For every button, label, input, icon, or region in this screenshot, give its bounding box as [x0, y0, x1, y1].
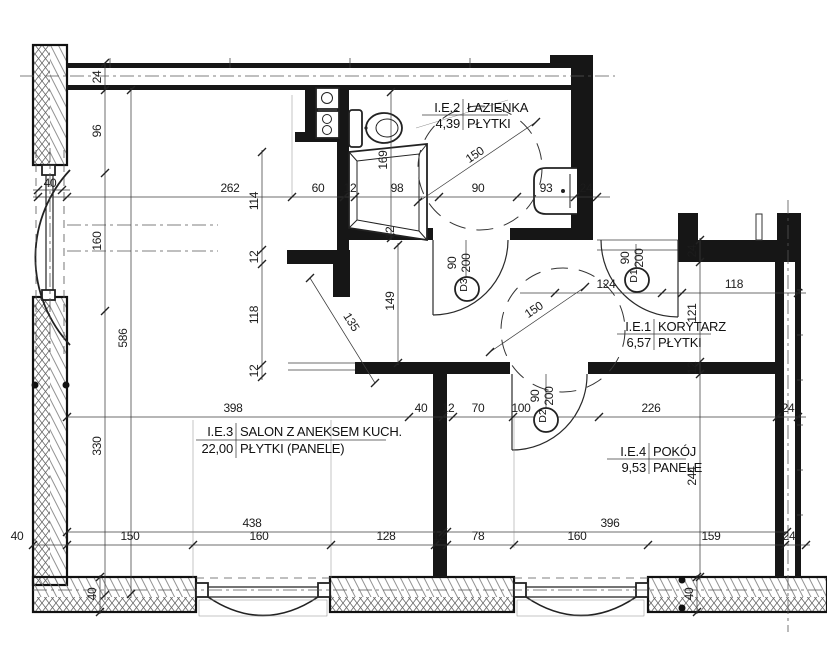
- dim-label: 396: [600, 516, 620, 530]
- room-id: I.E.4: [620, 444, 646, 459]
- dim-label: 12: [247, 250, 261, 263]
- door-tag-label: D1: [628, 269, 640, 283]
- room-area: 4,39: [435, 116, 460, 131]
- dim-label: 160: [249, 529, 269, 543]
- room-area: 9,53: [621, 460, 646, 475]
- exterior-wall-bottom: [33, 577, 827, 612]
- dim-label: 40: [44, 176, 57, 190]
- room-area: 22,00: [201, 441, 233, 456]
- room-name: POKÓJ: [653, 444, 696, 459]
- dim-label: 98: [391, 181, 404, 195]
- dim-label: 150: [522, 298, 546, 321]
- dim-label: 24: [580, 181, 593, 195]
- room-name: ŁAZIENKA: [467, 100, 529, 115]
- door-tag-label: D3: [458, 278, 470, 292]
- dim-label: 40: [85, 587, 99, 600]
- dim-label: 24: [782, 401, 795, 415]
- dim-label: 78: [472, 529, 485, 543]
- door-tag-d2: D2 90 200: [528, 386, 558, 432]
- dim-label: 93: [540, 181, 553, 195]
- dim-label: 96: [90, 124, 104, 137]
- floor-plan-page: 40 262 60 12 98 90 93 24 124 118 398 40 …: [0, 0, 827, 668]
- dim-label: 118: [725, 277, 744, 291]
- door-size-label: 90: [445, 256, 459, 269]
- dim-label: 262: [220, 181, 240, 195]
- dim-label: 114: [247, 191, 261, 210]
- dim-label: 90: [472, 181, 485, 195]
- toilet: [349, 110, 402, 147]
- dim-label: 398: [223, 401, 243, 415]
- dim-label: 330: [90, 436, 104, 456]
- window-pokoj: [514, 583, 648, 616]
- dim-label: 149: [383, 291, 397, 311]
- dim-label: 438: [242, 516, 262, 530]
- dim-label: 40: [682, 587, 696, 600]
- door-tag-d3: D3 90 200: [445, 253, 479, 301]
- room-label-pokoj: I.E.4 POKÓJ 9,53 PANELE: [607, 443, 703, 475]
- dim-label: 159: [701, 529, 721, 543]
- door-size-label: 200: [542, 386, 556, 406]
- room-label-corridor: I.E.1 KORYTARZ 6,57 PŁYTKI: [617, 319, 726, 350]
- room-label-salon: I.E.3 SALON Z ANEKSEM KUCH. 22,00 PŁYTKI…: [196, 423, 402, 458]
- room-floor: PŁYTKI: [658, 335, 702, 350]
- dim-label: 150: [120, 529, 140, 543]
- room-id: I.E.1: [625, 319, 651, 334]
- dim-label: 24: [90, 70, 104, 83]
- dim-label: 160: [90, 231, 104, 251]
- floor-plan-canvas: 40 262 60 12 98 90 93 24 124 118 398 40 …: [0, 0, 827, 668]
- dim-label: 12: [247, 364, 261, 377]
- dim-label: 60: [312, 181, 325, 195]
- door-tag-label: D2: [537, 409, 549, 423]
- dim-label: 12: [442, 401, 455, 415]
- dim-label: 586: [116, 328, 130, 348]
- room-floor: PANELE: [653, 460, 703, 475]
- room-id: I.E.3: [207, 424, 233, 439]
- door-tag-d1: D1 90 200: [618, 248, 649, 292]
- door-size-label: 90: [618, 251, 632, 264]
- dim-label: 40: [11, 529, 24, 543]
- dim-label: 12: [433, 529, 446, 543]
- dim-label: 124: [596, 277, 616, 291]
- room-area: 6,57: [626, 335, 651, 350]
- door-size-label: 90: [528, 389, 542, 402]
- room-label-bathroom: I.E.2 ŁAZIENKA 4,39 PŁYTKI: [422, 99, 529, 131]
- dim-label: 70: [472, 401, 485, 415]
- dim-label: 40: [415, 401, 428, 415]
- dim-label: 150: [463, 143, 487, 166]
- room-floor: PŁYTKI: [467, 116, 511, 131]
- room-floor: PŁYTKI (PANELE): [240, 441, 344, 456]
- dim-label: 12: [685, 361, 699, 374]
- window-salon: [196, 583, 330, 616]
- dim-label: 24: [685, 244, 699, 257]
- door-size-label: 200: [459, 253, 473, 273]
- meter-cabinet: [316, 88, 339, 138]
- dim-label: 226: [641, 401, 661, 415]
- dim-label: 128: [376, 529, 396, 543]
- door-size-label: 200: [632, 248, 646, 268]
- exterior-wall-top: [67, 55, 593, 90]
- room-name: SALON Z ANEKSEM KUCH.: [240, 424, 402, 439]
- dim-label: 135: [340, 310, 362, 334]
- room-id: I.E.2: [434, 100, 460, 115]
- dim-label: 12: [344, 181, 357, 195]
- dim-label: 24: [783, 529, 796, 543]
- dim-label: 12: [383, 226, 397, 239]
- dim-label: 160: [567, 529, 587, 543]
- dim-label: 169: [376, 150, 390, 170]
- dim-label: 118: [247, 305, 261, 324]
- room-name: KORYTARZ: [658, 319, 726, 334]
